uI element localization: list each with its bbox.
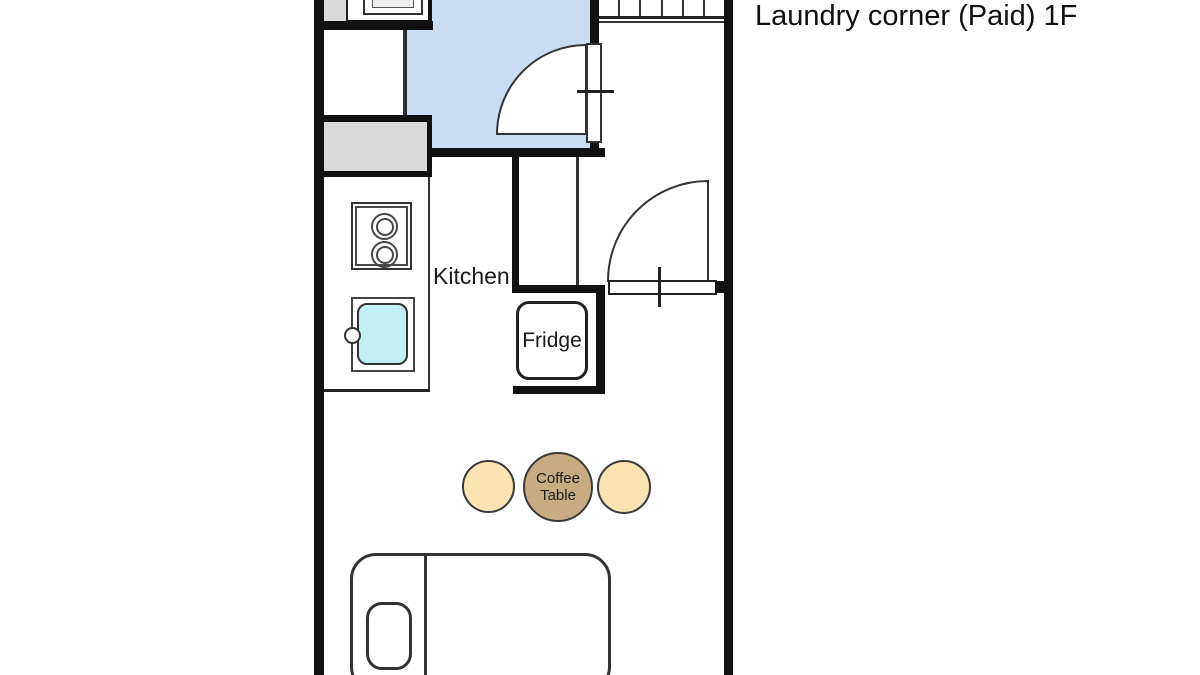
burner-icon	[371, 213, 398, 240]
bathroom-bottom-wall	[427, 148, 605, 157]
bathroom-door-tick	[577, 90, 614, 93]
wall-right	[724, 0, 733, 675]
shoe-cabinet-cell	[705, 0, 724, 16]
bed-headboard-divider	[424, 555, 427, 675]
entrance-door-tick	[658, 267, 661, 307]
faucet-icon	[344, 327, 361, 344]
bathroom-door-leaf	[586, 43, 602, 143]
chair-right	[597, 460, 651, 514]
shoe-cabinet-cell	[663, 0, 684, 16]
kitchen-niche	[324, 30, 405, 118]
closet-right-line	[576, 156, 579, 288]
sink-unit	[351, 297, 415, 372]
shoe-cabinet-cell	[641, 0, 662, 16]
shoe-cabinet-cell	[599, 0, 620, 16]
chair-left	[462, 460, 515, 513]
coffee-table-label-line2: Table	[540, 487, 576, 504]
washing-machine-drum-icon	[372, 0, 414, 8]
burner-icon	[371, 241, 398, 268]
kitchen-label: Kitchen	[433, 263, 510, 290]
shoe-cabinet	[599, 0, 724, 19]
coffee-table: Coffee Table	[523, 452, 593, 522]
shoe-cabinet-cell	[620, 0, 641, 16]
washing-machine-lid-icon	[363, 0, 423, 15]
bathroom-door-swing-icon	[495, 42, 590, 137]
stove	[351, 202, 412, 270]
closet-bottom-wall	[512, 285, 605, 293]
fridge: Fridge	[516, 301, 588, 380]
fridge-label: Fridge	[522, 329, 582, 353]
coffee-table-label-line1: Coffee	[536, 470, 580, 487]
shoe-cabinet-cell	[684, 0, 705, 16]
sink-basin-icon	[357, 303, 408, 365]
floor-plan-canvas: Kitchen Fridge Coffee Table	[0, 0, 1200, 675]
kitchen-grey-counter	[320, 115, 432, 177]
fridge-nook-right-wall	[596, 287, 605, 394]
burner-ring-icon	[376, 218, 394, 236]
wall-left	[314, 0, 324, 675]
stove-frame-icon	[355, 206, 408, 266]
closet-left-wall	[512, 156, 519, 288]
fridge-nook-bottom-wall	[513, 386, 605, 394]
pillow	[366, 602, 412, 670]
laundry-note: Laundry corner (Paid) 1F	[755, 0, 1077, 32]
wall-below-washer	[314, 21, 433, 30]
burner-ring-icon	[376, 246, 394, 264]
shoe-cabinet-edge-line	[599, 21, 724, 23]
entrance-door-leaf	[608, 280, 717, 295]
